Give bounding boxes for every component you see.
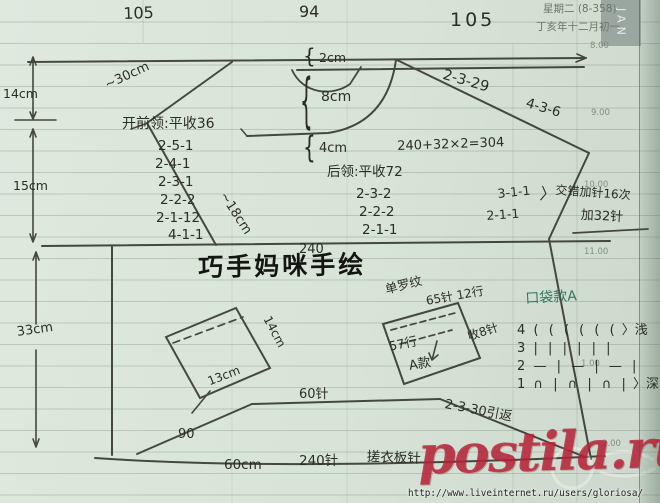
dim-neck-band: 2cm xyxy=(319,52,346,65)
increase-bracket: 〉 xyxy=(539,186,557,204)
back-neck-row-0: 2-3-2 xyxy=(356,188,392,202)
planner-page-photo: JAN 星期二 (8-358) 丁亥年十二月初一 8.00 9.00 10.00… xyxy=(0,0,660,503)
front-neck-row-2: 2-3-1 xyxy=(158,176,194,190)
hour-label-11: 11.00 xyxy=(584,248,608,257)
dim-shoulder-drop: 14cm xyxy=(3,88,38,101)
brace-neck-depth: { xyxy=(300,70,313,130)
hem-inner-sts: 60针 xyxy=(299,388,329,401)
chart-row-3-num: 3 xyxy=(517,341,525,356)
pocket-right-foldline-1 xyxy=(391,313,455,330)
width-top-left: 105 xyxy=(123,5,154,22)
front-neck-row-3: 2-2-2 xyxy=(160,194,196,208)
width-top-right: 105 xyxy=(450,11,495,30)
back-neck-row-1: 2-2-2 xyxy=(359,206,395,220)
dim-neck-depth: 8cm xyxy=(321,90,351,104)
pocket-right-style: A款 xyxy=(408,356,432,373)
width-top-mid: 94 xyxy=(299,4,319,20)
chart-row-4-symbols: ( ( ( ( ( ( xyxy=(534,323,618,338)
chart-row-4-num: 4 xyxy=(517,323,525,338)
chart-row-2: 2 — | — | — | xyxy=(517,360,639,373)
back-neck-title: 后领:平收72 xyxy=(327,166,403,180)
chart-row-4: 4 ( ( ( ( ( ( 〉浅 xyxy=(517,324,648,337)
chart-row-3-symbols: | | | | | | xyxy=(534,341,614,356)
hour-label-8: 8.00 xyxy=(590,42,609,51)
signature-text: 巧手妈咪手绘 xyxy=(198,252,366,280)
pocket-chart-title: 口袋款A xyxy=(525,289,577,306)
inner-hem-line xyxy=(252,399,440,404)
dimension-arrows xyxy=(15,57,56,447)
hem-stitch-note: 搓衣板针 xyxy=(367,451,421,466)
hem-width: 60cm xyxy=(224,459,262,473)
chart-row-2-num: 2 xyxy=(517,359,525,374)
hour-label-9: 9.00 xyxy=(591,109,610,118)
chest-calc-note: 240+32×2=304 xyxy=(397,136,505,153)
dim-neck-below: 4cm xyxy=(319,142,347,155)
raglan-left-line xyxy=(147,62,232,123)
hem-slant-rows: 90 xyxy=(178,428,195,441)
front-neck-row-4: 2-1-12 xyxy=(156,212,200,226)
lunar-date-label: 丁亥年十二月初一 xyxy=(536,22,620,33)
front-neck-row-1: 2-4-1 xyxy=(155,158,191,172)
postila-watermark: postila.ru xyxy=(417,420,660,481)
pocket-right-arrow xyxy=(429,341,438,360)
chart-row-2-symbols: — | — | — | xyxy=(534,359,640,374)
back-neck-row-2: 2-1-1 xyxy=(362,224,398,238)
side-dec-b: 2-1-1 xyxy=(486,208,520,223)
chart-row-3: 3 | | | | | | xyxy=(517,342,614,355)
front-neck-row-5: 4-1-1 xyxy=(168,229,204,243)
brace-neck-below: { xyxy=(303,132,316,162)
underarm-line xyxy=(42,241,610,246)
hem-sts: 240针 xyxy=(299,455,338,469)
chart-row-1-num: 1 xyxy=(517,377,525,392)
front-neck-title: 开前领:平收36 xyxy=(122,117,215,131)
brace-neck-band: { xyxy=(303,46,316,66)
source-url-watermark: http://www.liveinternet.ru/users/glorios… xyxy=(408,489,643,498)
dim-armhole-depth: 15cm xyxy=(13,180,48,193)
chart-row-1-symbols: ∩ | ∩ | ∩ | xyxy=(534,377,629,392)
chart-row-1-note: 〉深 xyxy=(633,377,659,392)
neckband-line xyxy=(297,67,584,70)
increase-total: 加32针 xyxy=(580,209,623,224)
chart-row-1: 1 ∩ | ∩ | ∩ | 〉深 xyxy=(517,378,659,391)
chart-row-4-note: 〉浅 xyxy=(622,323,648,338)
front-neck-row-0: 2-5-1 xyxy=(158,140,194,154)
weekday-label: 星期二 (8-358) xyxy=(543,4,617,15)
